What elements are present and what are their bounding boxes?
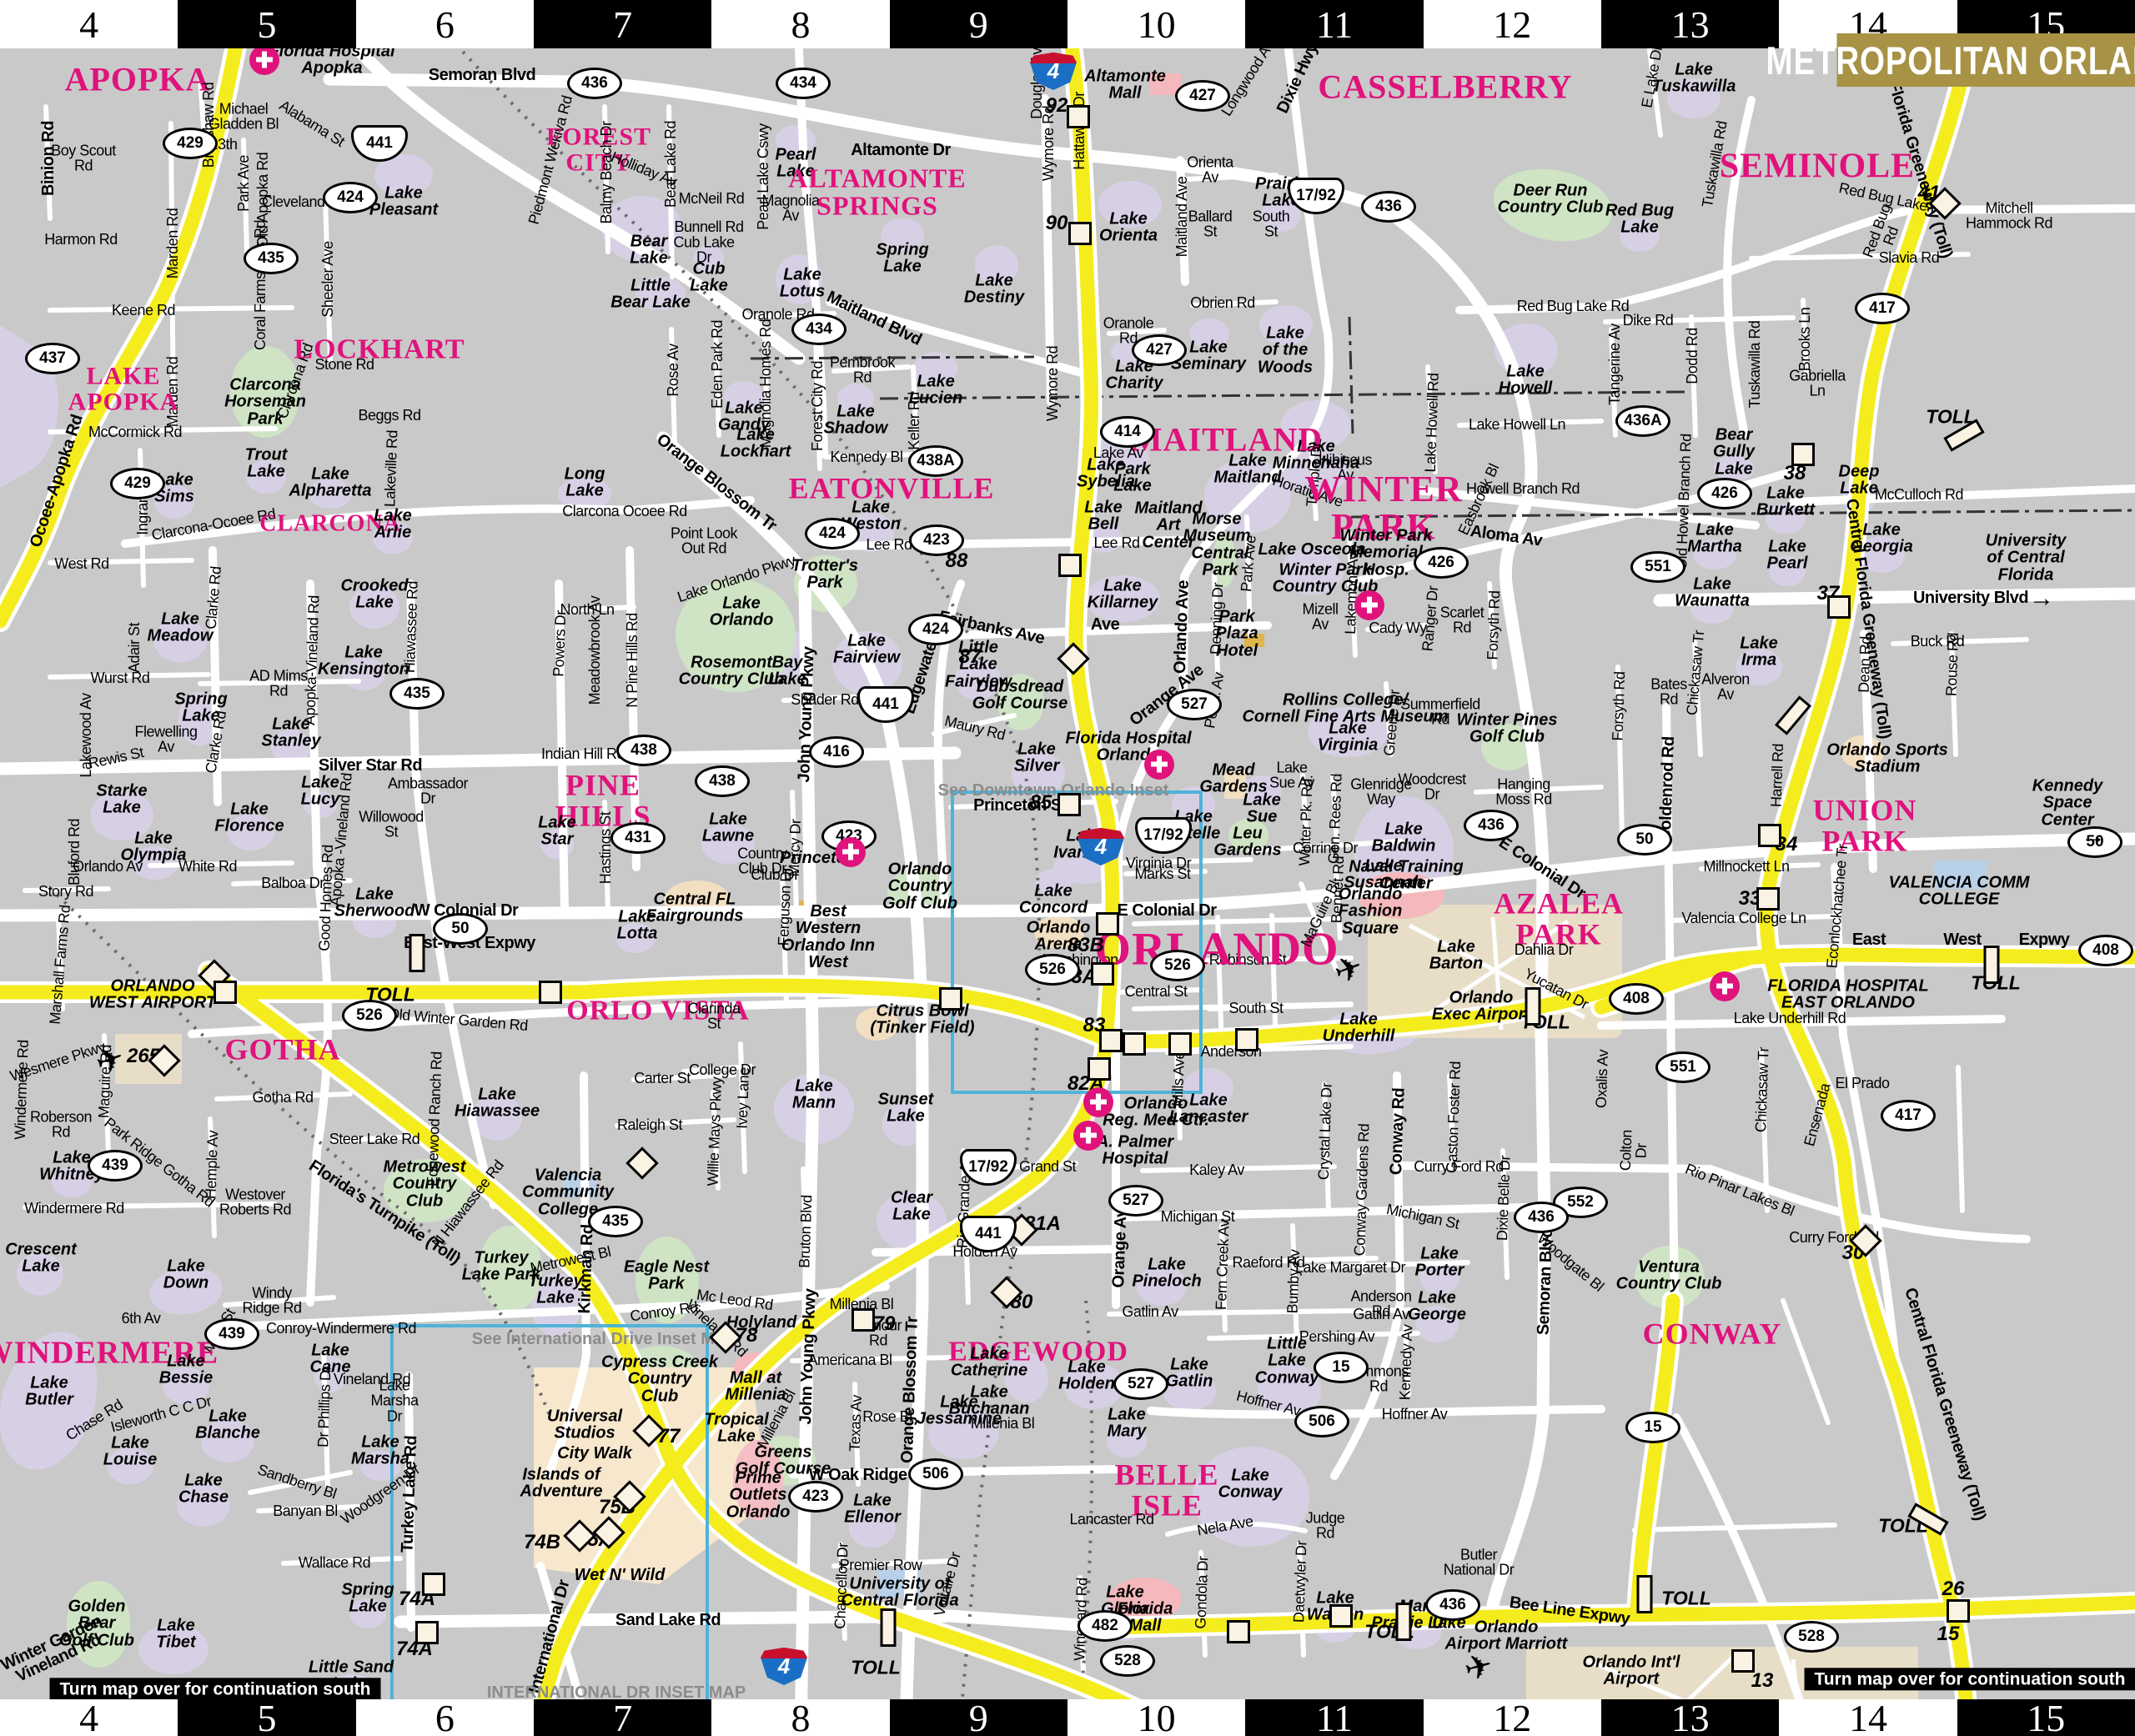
state-route-shield: 439 — [88, 1150, 143, 1182]
toll-plaza-marker — [409, 934, 425, 972]
state-route-shield: 436 — [1464, 810, 1519, 841]
state-route-shield: 506 — [908, 1458, 963, 1490]
state-route-shield: 427 — [1175, 80, 1230, 112]
state-route-shield: 429 — [163, 128, 218, 159]
state-route-shield: 416 — [809, 736, 864, 768]
interchange-marker — [1067, 105, 1090, 128]
interchange-marker — [1168, 1032, 1192, 1056]
interchange-marker — [1058, 554, 1082, 577]
state-route-shield: 436 — [1514, 1202, 1569, 1233]
state-route-shield: 429 — [110, 468, 165, 499]
interchange-marker — [1096, 912, 1119, 936]
interchange-marker — [1756, 887, 1780, 911]
state-route-shield: 434 — [776, 68, 831, 99]
interchange-marker — [939, 987, 962, 1011]
interchange-marker — [213, 981, 237, 1004]
grid-ruler-cell: 8 — [711, 0, 889, 48]
grid-ruler-cell: 4 — [0, 0, 178, 48]
grid-ruler-bottom: 456789101112131415 — [0, 1699, 2135, 1736]
toll-plaza-marker — [1984, 946, 2000, 984]
grid-ruler-cell: 5 — [178, 0, 355, 48]
state-route-shield: 50 — [1617, 824, 1672, 855]
state-route-shield: 435 — [588, 1206, 643, 1237]
state-route-shield: 424 — [323, 182, 378, 213]
grid-ruler-cell: 12 — [1424, 0, 1601, 48]
state-route-shield: 526 — [342, 1000, 397, 1031]
state-route-shield: 528 — [1100, 1645, 1155, 1677]
state-route-shield: 436 — [1361, 191, 1416, 223]
toll-plaza-marker — [1637, 1575, 1653, 1613]
interchange-marker — [539, 981, 562, 1004]
state-route-shield: 50 — [433, 913, 488, 945]
grid-ruler-cell: 13 — [1601, 0, 1779, 48]
state-route-shield: 417 — [1855, 293, 1910, 324]
state-route-shield: 424 — [805, 518, 860, 549]
interchange-marker — [1947, 1599, 1970, 1623]
interchange-marker — [851, 1308, 875, 1332]
state-route-shield: 426 — [1414, 547, 1469, 579]
state-route-shield: 424 — [908, 614, 963, 645]
state-route-shield: 423 — [909, 524, 964, 556]
state-route-shield: 423 — [788, 1481, 843, 1513]
state-route-shield: 435 — [389, 678, 445, 710]
grid-ruler-cell: 11 — [1245, 1699, 1423, 1736]
base-map — [0, 0, 2135, 1736]
state-route-shield: 438 — [695, 765, 750, 797]
state-route-shield: 526 — [1150, 950, 1205, 981]
state-route-shield: 434 — [791, 314, 846, 345]
state-route-shield: 50 — [2067, 826, 2122, 858]
toll-plaza-marker — [1396, 1603, 1412, 1641]
state-route-shield: 527 — [1167, 689, 1222, 720]
grid-ruler-cell: 15 — [1957, 1699, 2135, 1736]
state-route-shield: 527 — [1108, 1185, 1163, 1217]
grid-ruler-cell: 11 — [1245, 0, 1423, 48]
interchange-marker — [1827, 595, 1851, 619]
toll-plaza-marker — [881, 1608, 897, 1647]
state-route-shield: 551 — [1655, 1051, 1711, 1083]
grid-ruler-cell: 13 — [1601, 1699, 1779, 1736]
state-route-shield: 427 — [1132, 334, 1187, 366]
interchange-marker — [1791, 443, 1815, 466]
grid-ruler-cell: 7 — [534, 1699, 711, 1736]
grid-ruler-cell: 12 — [1424, 1699, 1601, 1736]
state-route-shield: 436A — [1615, 405, 1670, 437]
state-route-shield: 526 — [1025, 954, 1080, 986]
state-route-shield: 15 — [1314, 1352, 1369, 1383]
state-route-shield: 436 — [567, 68, 622, 99]
interchange-marker — [1329, 1604, 1353, 1628]
state-route-shield: 408 — [1609, 983, 1664, 1015]
grid-ruler-cell: 8 — [711, 1699, 889, 1736]
map-canvas: METROPOLITAN ORLANDO 456789101112131415 … — [0, 0, 2135, 1736]
state-route-shield: 414 — [1100, 416, 1155, 448]
interchange-marker — [1068, 222, 1092, 245]
interchange-marker — [422, 1573, 445, 1596]
state-route-shield: 437 — [25, 343, 80, 374]
grid-ruler-cell: 10 — [1067, 1699, 1245, 1736]
interchange-marker — [1057, 793, 1081, 816]
grid-ruler-cell: 6 — [356, 1699, 534, 1736]
grid-ruler-cell: 6 — [356, 0, 534, 48]
state-route-shield: 431 — [610, 822, 666, 854]
grid-ruler-cell: 5 — [178, 1699, 355, 1736]
state-route-shield: 15 — [1625, 1412, 1680, 1443]
state-route-shield: 426 — [1697, 478, 1752, 509]
state-route-shield: 439 — [204, 1318, 259, 1350]
interchange-marker — [415, 1621, 439, 1644]
state-route-shield: 408 — [2078, 935, 2133, 966]
state-route-shield: 551 — [1630, 551, 1685, 583]
grid-ruler-cell: 9 — [890, 1699, 1067, 1736]
state-route-shield: 435 — [244, 243, 299, 274]
grid-ruler-cell: 9 — [890, 0, 1067, 48]
state-route-shield: 438 — [616, 735, 671, 766]
state-route-shield: 528 — [1784, 1621, 1839, 1653]
toll-plaza-marker — [1525, 987, 1541, 1026]
interchange-marker — [1088, 1057, 1111, 1081]
state-route-shield: 527 — [1113, 1368, 1168, 1400]
state-route-shield: 438A — [908, 445, 963, 477]
interchange-marker — [1235, 1028, 1258, 1051]
state-route-shield: 506 — [1294, 1406, 1349, 1437]
interchange-marker — [1758, 824, 1781, 847]
grid-ruler-cell: 4 — [0, 1699, 178, 1736]
interchange-marker — [1227, 1620, 1250, 1643]
grid-ruler-cell: 10 — [1067, 0, 1245, 48]
state-route-shield: 423 — [821, 820, 877, 852]
state-route-shield: 482 — [1078, 1610, 1133, 1642]
interchange-marker — [1099, 1029, 1123, 1052]
state-route-shield: 417 — [1881, 1100, 1936, 1131]
interchange-marker — [1091, 962, 1114, 986]
grid-ruler-cell: 14 — [1779, 1699, 1957, 1736]
grid-ruler-cell: 7 — [534, 0, 711, 48]
state-route-shield: 436 — [1425, 1589, 1480, 1621]
interchange-marker — [1123, 1032, 1146, 1056]
interchange-marker — [1731, 1649, 1755, 1673]
map-title: METROPOLITAN ORLANDO — [1836, 33, 2135, 87]
